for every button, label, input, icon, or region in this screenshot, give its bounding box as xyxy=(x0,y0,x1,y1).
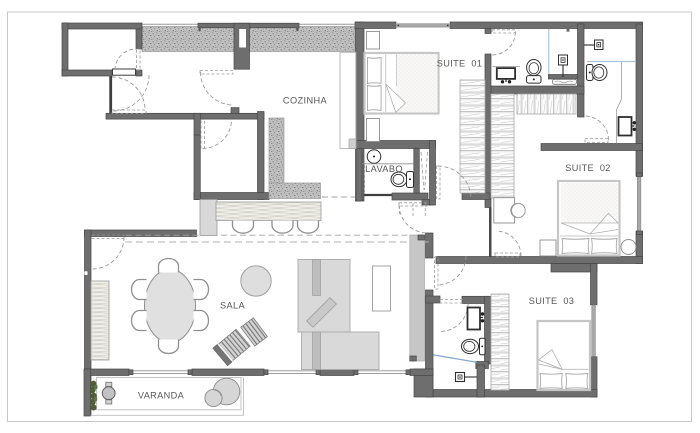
svg-text:LAVABO: LAVABO xyxy=(365,164,403,174)
svg-text:VARANDA: VARANDA xyxy=(138,391,185,401)
svg-text:COZINHA: COZINHA xyxy=(283,96,328,106)
svg-text:SUITE 03: SUITE 03 xyxy=(529,296,575,306)
svg-text:SUITE 02: SUITE 02 xyxy=(565,163,611,173)
svg-text:SALA: SALA xyxy=(220,301,245,311)
svg-text:SUITE 01: SUITE 01 xyxy=(437,59,483,69)
